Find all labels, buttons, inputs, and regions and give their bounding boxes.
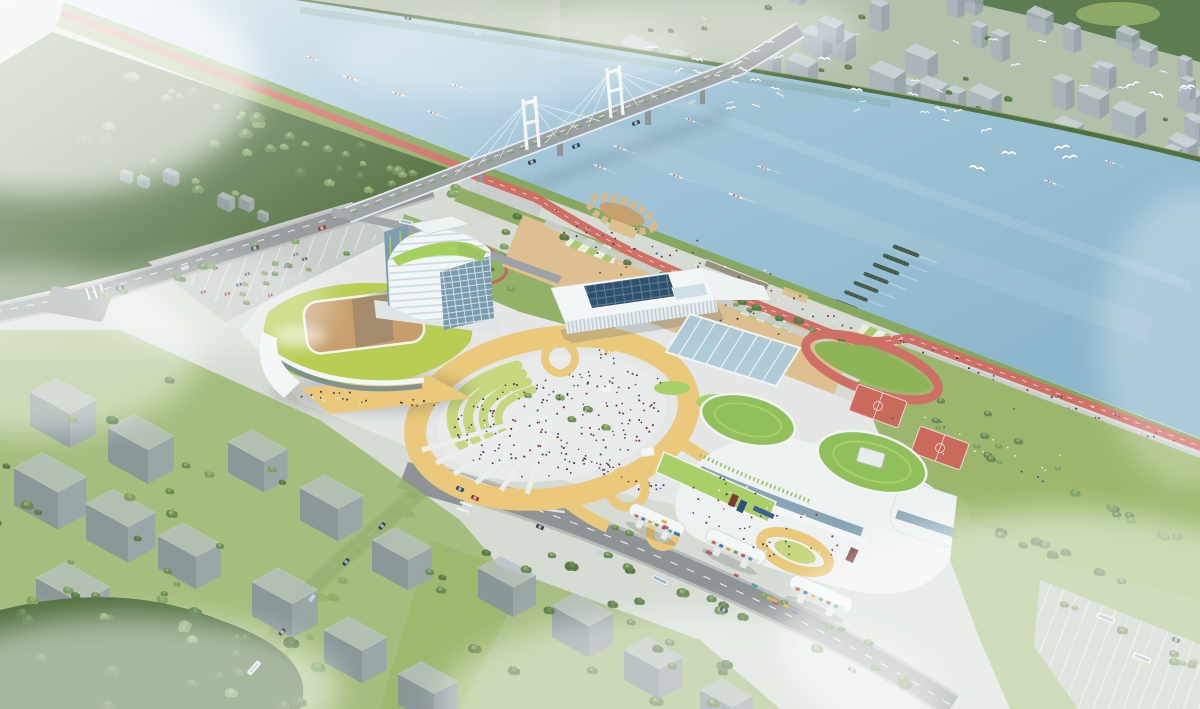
scatter-item [546,400,548,402]
scatter-item [577,385,579,387]
scatter-item [480,454,482,456]
scatter-item [486,431,488,433]
scatter-item [645,437,647,439]
scatter-item [618,463,620,465]
scatter-item [566,442,568,444]
scatter-item [638,395,640,397]
scatter-item [513,383,515,385]
scatter-item [725,483,727,485]
scatter-item [458,436,460,438]
scatter-item [339,392,341,394]
scatter-item [660,382,662,384]
scatter-item [943,426,945,428]
scatter-item [423,400,425,402]
scatter-item [613,434,615,436]
scatter-item [752,546,754,548]
scatter-item [1099,61,1116,90]
scatter-item [600,376,602,378]
scatter-item [609,380,611,382]
scatter-item [557,433,559,435]
architectural-rendering: Aerial architectural rendering of a rive… [0,0,1200,709]
scatter-item [588,228,590,230]
scatter-item [850,327,852,329]
scatter-item [585,410,587,412]
scatter-item [753,313,755,315]
scatter-item [563,406,565,408]
scatter-item [724,266,726,268]
scatter-item [736,318,738,320]
scatter-item [627,449,629,451]
scatter-item [482,408,484,410]
scatter-item [627,371,629,373]
scatter-item [799,295,801,297]
scatter-item [492,413,494,415]
scatter-item [516,394,518,396]
scatter-item [609,466,611,468]
scatter-item [359,402,361,404]
scatter-item [642,402,644,404]
scatter-item [572,376,574,378]
scatter-item [1098,417,1100,419]
scatter-item [538,462,540,464]
scatter-item [770,273,772,275]
scatter-item [512,419,514,421]
scatter-item [323,399,325,401]
scatter-item [513,444,515,446]
scatter-item [718,489,720,491]
scatter-item [1037,476,1039,478]
scatter-item [891,335,893,337]
scatter-item [993,375,995,377]
scatter-item [548,475,550,477]
scatter-item [614,238,616,240]
scatter-item [529,449,531,451]
scatter-item [481,405,483,407]
scatter-item [433,404,435,406]
scatter-item [611,232,613,234]
scatter-item [502,391,504,393]
scatter-item [922,351,924,353]
scatter-item [621,403,623,405]
scatter-item [599,467,601,469]
scatter-item [978,372,980,374]
scatter-item [536,384,538,386]
scatter-item [603,473,605,475]
scatter-item [1059,454,1061,456]
scatter-item [634,248,636,250]
scatter-item [583,463,585,465]
scatter-item [1095,417,1097,419]
scatter-item [510,391,512,393]
scatter-item [523,463,525,465]
scatter-item [618,386,620,388]
scatter-item [473,459,475,461]
scatter-item [730,505,732,507]
scatter-item [576,235,578,237]
scatter-item [509,435,511,437]
scatter-item [616,392,618,394]
scatter-item [518,398,520,400]
scatter-item [508,416,510,418]
scatter-item [585,231,587,233]
scatter-item [553,472,555,474]
scatter-item [613,362,615,364]
scatter-item [523,455,525,457]
scatter-item [312,396,314,398]
scatter-item [982,451,984,453]
scatter-item [635,427,637,429]
scatter-item [411,404,413,406]
scatter-item [622,412,624,414]
scatter-item [557,436,559,438]
scatter-item [635,228,637,230]
scatter-item [320,397,322,399]
scatter-item [940,421,942,423]
scatter-item [571,398,573,400]
scatter-item [692,252,694,254]
lawn-mound-1 [654,381,690,395]
scatter-item [638,399,640,401]
scatter-item [511,457,513,459]
scatter-item [646,427,648,429]
scatter-item [738,276,740,278]
scatter-item [589,375,591,377]
scatter-item [974,450,976,452]
scatter-item [631,246,633,248]
scatter-item [765,310,767,312]
scatter-item [541,401,543,403]
scatter-item [494,450,496,452]
scatter-item [968,367,970,369]
scatter-item [1092,406,1094,408]
scatter-item [900,337,902,339]
scatter-item [833,315,835,317]
scatter-item [600,463,602,465]
scatter-item [778,300,780,302]
scatter-item [493,410,495,412]
scatter-item [457,418,459,420]
scatter-item [582,414,584,416]
scatter-item [563,425,565,427]
scatter-item [536,387,538,389]
scatter-item [582,459,584,461]
scatter-item [699,262,701,264]
scatter-item [608,351,610,353]
scatter-item [1042,480,1044,482]
scatter-item [788,554,790,556]
scatter-item [765,550,767,552]
scatter-item [548,451,550,453]
scatter-item [320,391,322,393]
scatter-item [593,434,595,436]
scatter-item [570,472,572,474]
scatter-item [598,428,600,430]
scatter-item [619,412,621,414]
scatter-item [788,546,790,548]
scatter-item [416,405,418,407]
scatter-item [590,433,592,435]
scatter-item [469,425,471,427]
scatter-item [310,394,312,396]
scatter-item [613,358,615,360]
scatter-item [542,399,544,401]
scatter-item [412,399,414,401]
scatter-item [621,423,623,425]
scatter-item [1063,22,1081,53]
scatter-item [1051,396,1053,398]
scatter-item [760,515,762,517]
scatter-item [600,354,602,356]
scatter-item [744,527,746,529]
scatter-item [552,391,554,393]
scatter-item [627,423,629,425]
scatter-item [653,402,655,404]
scatter-item [619,449,621,451]
scatter-item [831,549,833,551]
scatter-item [932,349,934,351]
scatter-item [1013,408,1015,410]
scatter-item [573,462,575,464]
scatter-item [301,396,303,398]
scatter-item [605,353,607,355]
scatter-item [504,397,506,399]
scatter-item [638,440,640,442]
scatter-item [739,528,741,530]
scatter-item [558,398,560,400]
scatter-item [596,385,598,387]
scatter-item [566,468,568,470]
scatter-item [643,409,645,411]
scatter-item [602,469,604,471]
scatter-item [492,462,494,464]
scatter-item [510,453,512,455]
scatter-item [612,377,614,379]
scatter-item [337,397,339,399]
scatter-item [588,371,590,373]
scatter-item [743,538,745,540]
scatter-item [1044,470,1046,472]
scatter-item [581,377,583,379]
scatter-item [815,514,817,516]
scatter-item [514,420,516,422]
scatter-item [761,535,763,537]
scatter-item [766,507,768,509]
scatter-item [545,420,547,422]
scatter-item [595,461,597,463]
scatter-item [591,461,593,463]
scatter-item [561,446,563,448]
scatter-item [623,429,625,431]
scatter-item [548,409,550,411]
scatter-item [751,516,753,518]
scatter-item [785,541,787,543]
scatter-item [810,547,812,549]
scatter-item [802,308,804,310]
scatter-item [956,357,958,359]
scatter-item [778,333,780,335]
scatter-item [836,544,838,546]
scatter-item [812,550,814,552]
scatter-item [619,263,621,265]
scatter-item [597,410,599,412]
scatter-item [1021,471,1023,473]
scatter-item [502,470,504,472]
scatter-item [540,431,542,433]
scatter-item [631,369,633,371]
scatter-item [567,394,569,396]
scatter-item [812,315,814,317]
scatter-item [869,0,889,32]
scatter-item [783,295,785,297]
scatter-item [804,514,806,516]
scatter-item [548,394,550,396]
scatter-item [498,444,500,446]
scatter-item [632,381,634,383]
scatter-item [349,391,351,393]
scatter-item [516,384,518,386]
scatter-item [595,246,597,248]
scatter-item [629,419,631,421]
scatter-item [537,422,539,424]
scatter-item [903,342,905,344]
scatter-item [545,431,547,433]
scatter-item [746,486,748,488]
scatter-item [581,433,583,435]
scatter-item [662,484,664,486]
scatter-item [510,428,512,430]
scatter-item [605,446,607,448]
scatter-item [521,476,523,478]
scatter-item [769,555,771,557]
scatter-item [346,399,348,401]
scatter-item [705,522,707,524]
scatter-item [695,264,697,266]
scatter-item [454,426,456,428]
scatter-item [636,440,638,442]
scatter-item [992,439,994,441]
scatter-item [708,516,710,518]
scatter-item [719,477,721,479]
scatter-item [523,405,525,407]
scatter-item [833,319,835,321]
scatter-item [651,377,653,379]
rendering-canvas: Aerial architectural rendering of a rive… [0,0,1200,709]
scatter-item [573,385,575,387]
scatter-item [730,492,732,494]
scatter-item [545,380,547,382]
scatter-item [750,527,752,529]
scatter-item [537,445,539,447]
scatter-item [718,525,720,527]
scatter-item [569,461,571,463]
scatter-item [471,445,473,447]
scatter-item [842,324,844,326]
scatter-item [571,469,573,471]
scatter-item [1041,467,1043,469]
scatter-item [556,413,558,415]
scatter-item [1060,396,1062,398]
scatter-item [808,330,810,332]
scatter-item [581,427,583,429]
scatter-item [786,528,788,530]
scatter-item [609,247,611,249]
scatter-item [598,356,600,358]
scatter-item [481,444,483,446]
scatter-item [603,469,605,471]
scatter-item [609,378,611,380]
scatter-item [589,427,591,429]
scatter-item [490,410,492,412]
scatter-item [559,395,561,397]
scatter-item [333,392,335,394]
scatter-item [604,386,606,388]
scatter-item [498,447,500,449]
scatter-item [466,434,468,436]
far-meadow [1076,2,1160,26]
scatter-item [635,384,637,386]
scatter-item [660,488,662,490]
scatter-item [529,425,531,427]
scatter-item [942,453,944,455]
scatter-item [959,433,961,435]
scatter-item [638,419,640,421]
scatter-item [776,515,778,517]
scatter-item [602,427,604,429]
scatter-item [661,256,663,258]
scatter-item [608,464,610,466]
scatter-item [563,232,565,234]
scatter-item [579,374,581,376]
scatter-item [754,492,756,494]
scatter-item [656,252,658,254]
scatter-item [693,487,695,489]
scatter-item [628,387,630,389]
scatter-item [576,226,578,228]
scatter-item [539,445,541,447]
scatter-item [657,378,659,380]
scatter-item [596,252,598,254]
scatter-item [800,516,802,518]
scatter-item [636,374,638,376]
scatter-item [838,547,840,549]
scatter-item [595,440,597,442]
scatter-item [361,402,363,404]
scatter-item [578,449,580,451]
scatter-item [657,410,659,412]
scatter-item [717,499,719,501]
scatter-item [624,437,626,439]
scatter-item [831,535,833,537]
scatter-item [655,484,657,486]
scatter-item [630,409,632,411]
scatter-item [1057,397,1059,399]
scatter-item [537,409,539,411]
scatter-item [365,400,367,402]
scatter-item [624,433,626,435]
scatter-item [754,535,756,537]
scatter-item [600,357,602,359]
scatter-item [583,403,585,405]
scatter-item [773,554,775,556]
scatter-item [726,493,728,495]
scatter-item [971,21,988,49]
scatter-item [482,398,484,400]
scatter-item [587,381,589,383]
scatter-item [560,440,562,442]
fog-mid-left [95,257,335,353]
scatter-item [1026,389,1028,391]
scatter-item [564,459,566,461]
